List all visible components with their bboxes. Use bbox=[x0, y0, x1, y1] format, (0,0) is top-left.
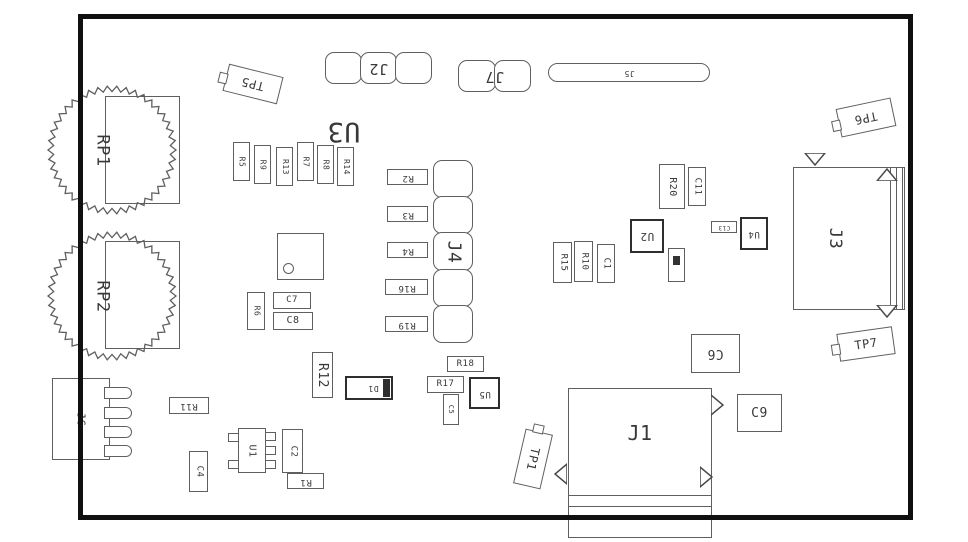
capacitor-c7-label: C7 bbox=[286, 296, 298, 305]
capacitor-c13: C13 bbox=[711, 221, 737, 233]
resistor-r2: R2 bbox=[387, 169, 428, 185]
resistor-r15-label: R15 bbox=[558, 254, 567, 272]
connector-j6-pin bbox=[104, 426, 132, 438]
slot-j5-label: J5 bbox=[624, 69, 635, 77]
resistor-r6: R6 bbox=[247, 292, 265, 330]
resistor-r13: R13 bbox=[276, 147, 293, 186]
connector-j3-line bbox=[896, 168, 897, 309]
resistor-r19: R19 bbox=[385, 316, 428, 332]
diode-d1-cathode-bar bbox=[383, 379, 390, 397]
resistor-r7-label: R7 bbox=[301, 156, 309, 167]
connector-j3-line bbox=[902, 168, 903, 309]
resistor-r20-label: R20 bbox=[667, 177, 677, 197]
resistor-r12-label: R12 bbox=[316, 363, 329, 388]
resistor-r15: R15 bbox=[553, 242, 572, 283]
potentiometer-rp2-label-label: RP2 bbox=[94, 280, 111, 312]
j1-notch-right-top bbox=[711, 394, 724, 416]
ic-u3-label-label: U3 bbox=[327, 118, 361, 145]
connector-j2: J2 bbox=[325, 52, 432, 84]
testpoint-tp1: TP1 bbox=[513, 429, 553, 490]
ic-unlabeled bbox=[277, 233, 324, 280]
resistor-r5-label: R5 bbox=[237, 156, 245, 167]
capacitor-c4-label: C4 bbox=[194, 466, 203, 478]
capacitor-c11-label: C11 bbox=[693, 178, 702, 196]
resistor-r12: R12 bbox=[312, 352, 333, 398]
ic-u4: U4 bbox=[740, 217, 768, 250]
resistor-r13-label: R13 bbox=[281, 159, 289, 175]
potentiometer-rp1-label-label: RP1 bbox=[94, 134, 111, 166]
ic-u1-pin bbox=[228, 460, 239, 469]
connector-j3-line bbox=[890, 168, 891, 309]
pcb-silkscreen-diagram: RP1RP2TP5J2J7J5TP6U3R5R9R13R7R8R14R2R3R4… bbox=[0, 0, 968, 542]
capacitor-c5-label: C5 bbox=[448, 405, 455, 414]
capacitor-c2-label: C2 bbox=[288, 445, 297, 457]
ic-u1-label: U1 bbox=[247, 444, 257, 457]
resistor-r11: R11 bbox=[169, 397, 209, 414]
connector-j1-line bbox=[569, 506, 711, 507]
resistor-r14-label: R14 bbox=[342, 159, 350, 175]
resistor-r5: R5 bbox=[233, 142, 250, 181]
potentiometer-rp2-label: RP2 bbox=[86, 266, 118, 326]
capacitor-c8: C8 bbox=[273, 312, 313, 330]
connector-j6-label: J6 bbox=[76, 412, 87, 426]
resistor-r17-label: R17 bbox=[437, 380, 455, 389]
capacitor-c13-label: C13 bbox=[718, 224, 730, 230]
connector-j4-label: J4 bbox=[444, 240, 462, 263]
connector-j7-label: J7 bbox=[485, 69, 504, 84]
connector-j3: J3 bbox=[793, 167, 905, 310]
connector-j2-label: J2 bbox=[369, 61, 388, 76]
capacitor-c6: C6 bbox=[691, 334, 740, 373]
testpoint-tp1-key-notch bbox=[532, 423, 545, 434]
ic-u1-pin bbox=[228, 433, 239, 442]
j3-notch-top-right bbox=[876, 168, 898, 181]
resistor-r3-label: R3 bbox=[402, 210, 414, 219]
j3-notch-top-left bbox=[804, 153, 826, 166]
resistor-r6-label: R6 bbox=[252, 306, 260, 317]
resistor-r19-label: R19 bbox=[398, 320, 416, 329]
resistor-r16-label: R16 bbox=[398, 283, 416, 292]
ic-u5: U5 bbox=[469, 377, 500, 409]
resistor-r10: R10 bbox=[574, 241, 593, 282]
capacitor-c11: C11 bbox=[688, 167, 706, 206]
capacitor-c1-label: C1 bbox=[602, 258, 611, 270]
testpoint-tp5-label: TP5 bbox=[240, 75, 265, 92]
small-part-unlabeled-mark bbox=[673, 256, 680, 265]
ic-u1-pin bbox=[265, 432, 276, 441]
capacitor-c6-label: C6 bbox=[707, 347, 724, 360]
diode-d1: D1 bbox=[345, 376, 393, 400]
resistor-r18: R18 bbox=[447, 356, 484, 372]
potentiometer-rp1-label: RP1 bbox=[86, 120, 118, 180]
resistor-r2-label: R2 bbox=[402, 173, 414, 182]
resistor-r1: R1 bbox=[287, 473, 324, 489]
resistor-r16: R16 bbox=[385, 279, 428, 295]
ic-u2: U2 bbox=[630, 219, 664, 253]
small-part-unlabeled bbox=[668, 248, 685, 282]
resistor-r8-label: R8 bbox=[321, 159, 329, 170]
resistor-r4-label: R4 bbox=[402, 246, 414, 255]
slot-j5: J5 bbox=[548, 63, 710, 82]
testpoint-tp5: TP5 bbox=[222, 64, 283, 105]
capacitor-c9: C9 bbox=[737, 394, 782, 432]
connector-j6-pin bbox=[104, 387, 132, 399]
connector-j1-line bbox=[569, 495, 711, 496]
testpoint-tp7-key-notch bbox=[831, 344, 841, 356]
resistor-r18-label: R18 bbox=[457, 360, 475, 369]
testpoint-tp1-label: TP1 bbox=[525, 446, 542, 471]
resistor-r9: R9 bbox=[254, 145, 271, 184]
capacitor-c7: C7 bbox=[273, 292, 311, 309]
testpoint-tp6-label: TP6 bbox=[853, 109, 878, 126]
ic-u2-label: U2 bbox=[640, 231, 654, 242]
ic-u1-pin bbox=[265, 460, 276, 469]
capacitor-c8-label: C8 bbox=[286, 316, 299, 326]
ic-u5-label: U5 bbox=[479, 389, 491, 398]
resistor-r14: R14 bbox=[337, 147, 354, 186]
connector-j4: J4 bbox=[433, 160, 473, 343]
testpoint-tp6: TP6 bbox=[836, 97, 897, 137]
connector-j6-pin bbox=[104, 407, 132, 419]
ic-u4-label: U4 bbox=[748, 229, 760, 238]
connector-j3-label: J3 bbox=[826, 228, 843, 249]
testpoint-tp7: TP7 bbox=[836, 326, 895, 362]
resistor-r4: R4 bbox=[387, 242, 428, 258]
ic-unlabeled-pin1-dot bbox=[283, 263, 294, 274]
j1-notch-right-bottom bbox=[700, 466, 713, 488]
connector-j6-pin bbox=[104, 445, 132, 457]
resistor-r11-label: R11 bbox=[180, 401, 198, 410]
capacitor-c2: C2 bbox=[282, 429, 303, 473]
testpoint-tp5-key-notch bbox=[217, 72, 228, 85]
resistor-r9-label: R9 bbox=[258, 159, 266, 170]
resistor-r3: R3 bbox=[387, 206, 428, 222]
capacitor-c5: C5 bbox=[443, 394, 459, 425]
capacitor-c4: C4 bbox=[189, 451, 208, 492]
testpoint-tp6-key-notch bbox=[831, 119, 842, 132]
diode-d1-label: D1 bbox=[368, 384, 379, 392]
resistor-r1-label: R1 bbox=[300, 477, 312, 486]
j3-notch-bottom bbox=[876, 305, 898, 318]
resistor-r7: R7 bbox=[297, 142, 314, 181]
ic-u1-pin bbox=[265, 446, 276, 455]
connector-j1: J1 bbox=[568, 388, 712, 538]
capacitor-c9-label: C9 bbox=[751, 407, 768, 420]
resistor-r10-label: R10 bbox=[579, 253, 588, 271]
capacitor-c1: C1 bbox=[597, 244, 615, 283]
connector-j7: J7 bbox=[458, 60, 531, 92]
ic-u1: U1 bbox=[238, 428, 266, 473]
testpoint-tp7-label: TP7 bbox=[854, 336, 879, 351]
resistor-r17: R17 bbox=[427, 376, 464, 393]
j1-notch-left bbox=[554, 463, 567, 485]
resistor-r20: R20 bbox=[659, 164, 685, 209]
connector-j6: J6 bbox=[52, 378, 110, 460]
resistor-r8: R8 bbox=[317, 145, 334, 184]
connector-j1-label: J1 bbox=[627, 421, 652, 445]
